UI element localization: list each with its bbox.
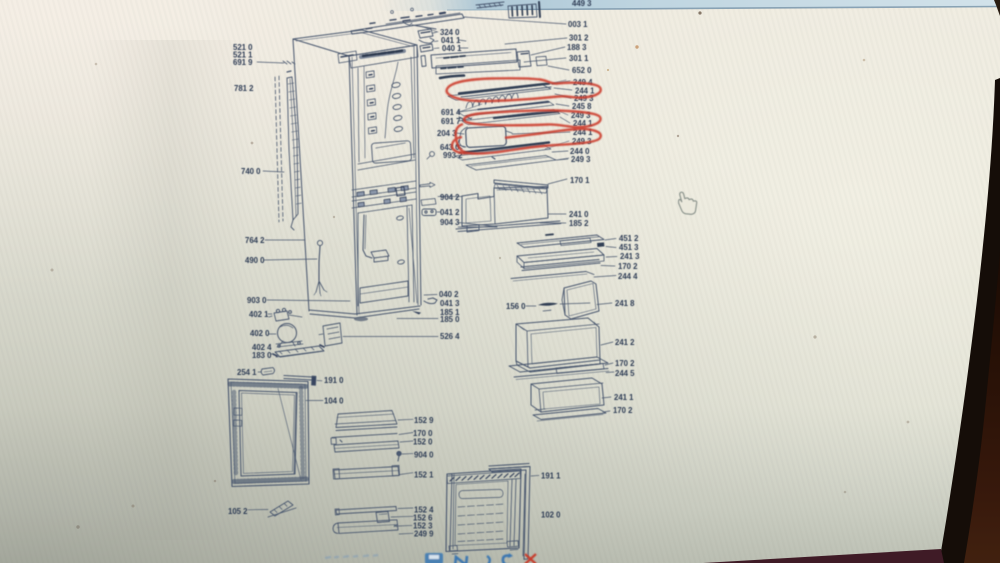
- svg-text:241 0: 241 0: [569, 210, 589, 219]
- svg-text:152 0: 152 0: [413, 438, 433, 447]
- svg-text:249 3: 249 3: [571, 155, 591, 164]
- svg-text:170 2: 170 2: [618, 262, 638, 271]
- svg-text:402 0: 402 0: [250, 329, 270, 338]
- svg-text:451 2: 451 2: [619, 234, 639, 243]
- svg-text:449 3: 449 3: [572, 0, 592, 8]
- svg-text:185 0: 185 0: [440, 315, 460, 324]
- svg-text:191 1: 191 1: [541, 472, 561, 481]
- svg-text:301 2: 301 2: [569, 34, 589, 43]
- svg-text:241 8: 241 8: [615, 299, 635, 308]
- svg-text:904 2: 904 2: [440, 193, 460, 202]
- svg-text:904 0: 904 0: [414, 451, 434, 460]
- svg-text:003 1: 003 1: [568, 20, 588, 29]
- svg-text:102 0: 102 0: [541, 511, 561, 520]
- svg-text:764 2: 764 2: [245, 236, 265, 245]
- svg-text:241 2: 241 2: [615, 338, 635, 347]
- svg-text:185 2: 185 2: [569, 219, 589, 228]
- svg-text:204 3: 204 3: [437, 129, 457, 138]
- svg-text:241 1: 241 1: [614, 393, 634, 402]
- svg-text:156 0: 156 0: [506, 302, 526, 311]
- svg-text:241 3: 241 3: [620, 252, 640, 261]
- svg-text:244 5: 244 5: [615, 369, 635, 378]
- svg-text:402 1: 402 1: [249, 310, 269, 319]
- svg-text:040 2: 040 2: [439, 290, 459, 299]
- svg-text:249 9: 249 9: [414, 530, 434, 539]
- svg-text:652 0: 652 0: [572, 66, 592, 75]
- svg-text:301 1: 301 1: [569, 54, 589, 63]
- svg-text:183 0: 183 0: [252, 351, 272, 360]
- svg-text:245 8: 245 8: [572, 102, 592, 111]
- svg-text:104 0: 104 0: [324, 397, 344, 406]
- svg-text:188 3: 188 3: [567, 43, 587, 52]
- svg-text:170 2: 170 2: [613, 406, 633, 415]
- svg-text:451 3: 451 3: [619, 243, 639, 252]
- svg-text:740 0: 740 0: [241, 167, 261, 176]
- svg-text:903 0: 903 0: [247, 296, 267, 305]
- svg-text:526 4: 526 4: [440, 332, 460, 341]
- svg-text:041 2: 041 2: [440, 208, 460, 217]
- svg-text:105 2: 105 2: [228, 507, 248, 516]
- svg-text:904 3: 904 3: [440, 218, 460, 227]
- svg-text:781 2: 781 2: [234, 84, 254, 93]
- svg-text:691 9: 691 9: [233, 58, 253, 67]
- svg-text:254 1: 254 1: [237, 368, 257, 377]
- svg-text:191 0: 191 0: [324, 376, 344, 385]
- svg-text:691 4: 691 4: [441, 108, 461, 117]
- svg-text:244 4: 244 4: [618, 272, 638, 281]
- svg-text:170 2: 170 2: [615, 359, 635, 368]
- svg-text:490 0: 490 0: [245, 256, 265, 265]
- svg-text:170 1: 170 1: [570, 176, 590, 185]
- svg-text:152 9: 152 9: [414, 416, 434, 425]
- svg-text:152 1: 152 1: [414, 471, 434, 480]
- svg-text:691 7: 691 7: [441, 117, 461, 126]
- svg-text:040 1: 040 1: [442, 44, 462, 53]
- svg-text:041 3: 041 3: [440, 299, 460, 308]
